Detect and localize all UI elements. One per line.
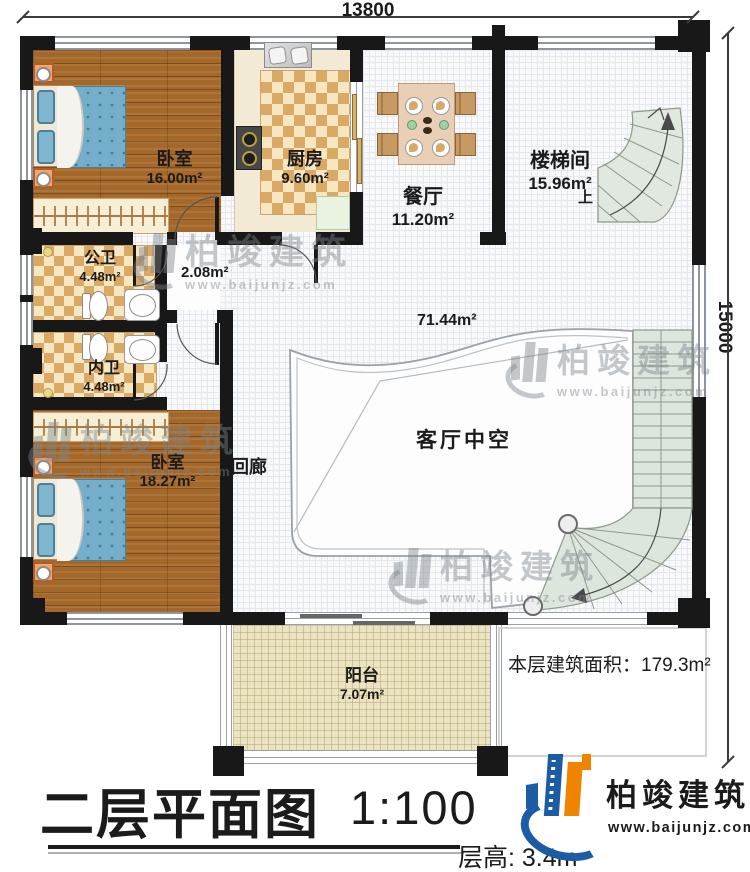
room-area: 7.07m² bbox=[312, 686, 412, 703]
room-label-private-bath: 内卫 4.48m² bbox=[73, 360, 135, 394]
pillow bbox=[37, 483, 55, 517]
dimension-line-top bbox=[23, 16, 693, 18]
scale-label: 1:100 bbox=[350, 780, 478, 835]
floor-area-note: 本层建筑面积：179.3m² bbox=[508, 650, 711, 677]
hall-area-label: 2.08m² bbox=[181, 264, 229, 281]
dish bbox=[439, 120, 449, 130]
room-name: 卧室 bbox=[115, 453, 220, 473]
dish bbox=[423, 117, 432, 124]
room-area: 9.60m² bbox=[255, 170, 355, 188]
room-label-bedroom2: 卧室 18.27m² bbox=[115, 453, 220, 491]
kitchen-sink bbox=[264, 42, 312, 68]
burner bbox=[242, 132, 257, 147]
pillow bbox=[37, 523, 55, 557]
room-area: 18.27m² bbox=[115, 473, 220, 491]
stair-up-label: 上 bbox=[578, 186, 593, 207]
sink-basin bbox=[268, 46, 287, 65]
door-kitchen bbox=[279, 245, 318, 283]
brand-url: www.baijunjz.com bbox=[608, 820, 750, 836]
room-name: 厨房 bbox=[255, 149, 355, 170]
plate bbox=[432, 97, 450, 115]
plate bbox=[432, 139, 450, 157]
room-label-balcony: 阳台 7.07m² bbox=[312, 666, 412, 703]
void-name-label: 客厅中空 bbox=[416, 424, 512, 454]
shower-head bbox=[43, 388, 53, 398]
room-label-public-bath: 公卫 4.48m² bbox=[69, 250, 131, 284]
room-name: 阳台 bbox=[312, 666, 412, 686]
dimension-width-label: 13800 bbox=[328, 0, 408, 22]
corridor-label: 回廊 bbox=[231, 453, 267, 479]
room-label-bedroom1: 卧室 16.00m² bbox=[122, 149, 227, 188]
dining-table bbox=[398, 83, 455, 165]
nightstand bbox=[33, 63, 54, 83]
pillow bbox=[37, 130, 55, 164]
room-label-stairwell: 楼梯间 15.96m² bbox=[500, 150, 620, 194]
nightstand bbox=[33, 562, 54, 582]
room-area: 16.00m² bbox=[122, 170, 227, 188]
room-name: 卧室 bbox=[122, 149, 227, 170]
dish bbox=[407, 120, 417, 130]
floor-plan-page: 卧室 16.00m² 厨房 9.60m² 餐厅 11.20m² 楼梯间 15.9… bbox=[0, 0, 750, 872]
brand-logo-icon bbox=[522, 752, 606, 856]
kitchen-counter-block bbox=[316, 196, 350, 230]
title-underline-thick bbox=[48, 845, 460, 849]
dining-chair bbox=[377, 133, 398, 156]
dining-chair bbox=[455, 92, 476, 115]
door-bedroom1 bbox=[175, 197, 219, 240]
dining-chair bbox=[377, 92, 398, 115]
plate bbox=[405, 139, 423, 157]
shower-head bbox=[43, 247, 53, 257]
toilet bbox=[89, 291, 108, 321]
dimension-height-label: 15000 bbox=[713, 297, 735, 357]
room-name: 餐厅 bbox=[368, 186, 478, 210]
room-name: 楼梯间 bbox=[500, 150, 620, 174]
room-area: 4.48m² bbox=[73, 379, 135, 394]
room-name: 内卫 bbox=[73, 360, 135, 379]
dimension-line-right bbox=[727, 33, 729, 762]
bath-sink bbox=[129, 294, 156, 317]
page-title: 二层平面图 bbox=[40, 770, 320, 849]
bed bbox=[33, 85, 125, 167]
door-private-bath bbox=[133, 360, 167, 400]
nightstand bbox=[33, 456, 54, 476]
room-area: 4.48m² bbox=[69, 269, 131, 284]
room-name: 公卫 bbox=[69, 250, 131, 269]
void-area-label: 71.44m² bbox=[417, 312, 477, 330]
room-area: 15.96m² bbox=[500, 174, 620, 194]
nightstand bbox=[33, 168, 54, 188]
dining-chair bbox=[455, 133, 476, 156]
bath-sink bbox=[129, 339, 156, 361]
sink-basin bbox=[290, 46, 309, 65]
plate bbox=[405, 97, 423, 115]
toilet bbox=[89, 333, 108, 363]
pillow bbox=[37, 90, 55, 124]
room-area: 11.20m² bbox=[368, 210, 478, 230]
title-underline-thin bbox=[48, 852, 464, 854]
room-label-dining: 餐厅 11.20m² bbox=[368, 186, 478, 230]
bath-sink-counter bbox=[124, 289, 160, 321]
stair-straight-flight bbox=[633, 330, 692, 508]
brand-name: 柏竣建筑 bbox=[606, 770, 750, 815]
room-label-kitchen: 厨房 9.60m² bbox=[255, 149, 355, 188]
bed bbox=[33, 478, 125, 560]
door-public-bath bbox=[133, 245, 167, 286]
dish bbox=[423, 127, 432, 134]
door-bedroom2 bbox=[177, 323, 219, 365]
